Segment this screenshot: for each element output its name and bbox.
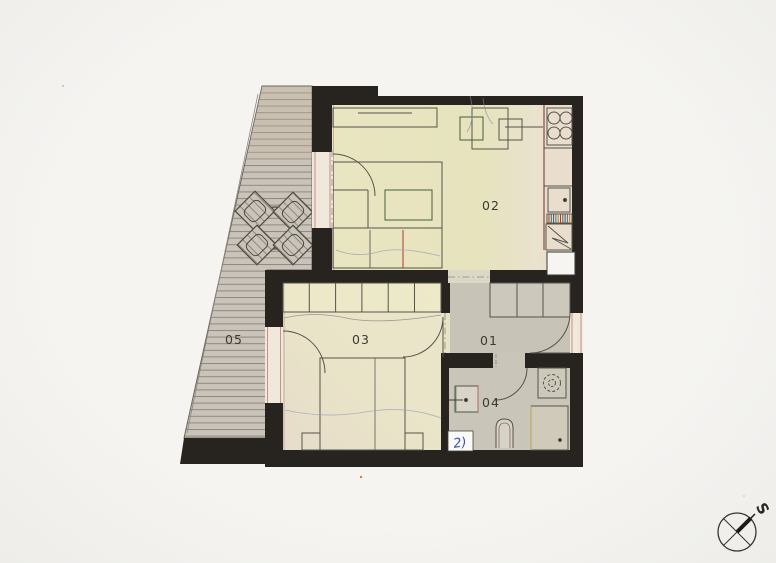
room-label-05: 05 <box>225 332 243 347</box>
toilet <box>496 419 513 448</box>
handwritten-note: 2) <box>452 435 467 452</box>
handwritten-note-box: 2) <box>448 431 473 452</box>
room-label-01: 01 <box>480 333 498 348</box>
terrace-sun-tint <box>246 86 312 160</box>
compass-icon: S <box>718 500 773 551</box>
installation-shaft <box>547 252 575 275</box>
washing-machine <box>538 368 566 398</box>
room-bedroom: 03 <box>265 283 450 450</box>
compass-needle <box>737 518 751 532</box>
floor-plan-drawing: 02 <box>0 0 776 563</box>
room-label-04: 04 <box>482 395 500 410</box>
floor-plan-scan: 02 <box>0 0 776 563</box>
wardrobe-hall <box>490 283 570 317</box>
room-label-02: 02 <box>482 198 500 213</box>
room-label-03: 03 <box>352 332 370 347</box>
room-living-kitchen: 02 <box>312 96 572 270</box>
room-hallway: 01 <box>450 283 583 353</box>
shower <box>531 406 568 450</box>
kitchen-counter-strip <box>544 105 572 250</box>
